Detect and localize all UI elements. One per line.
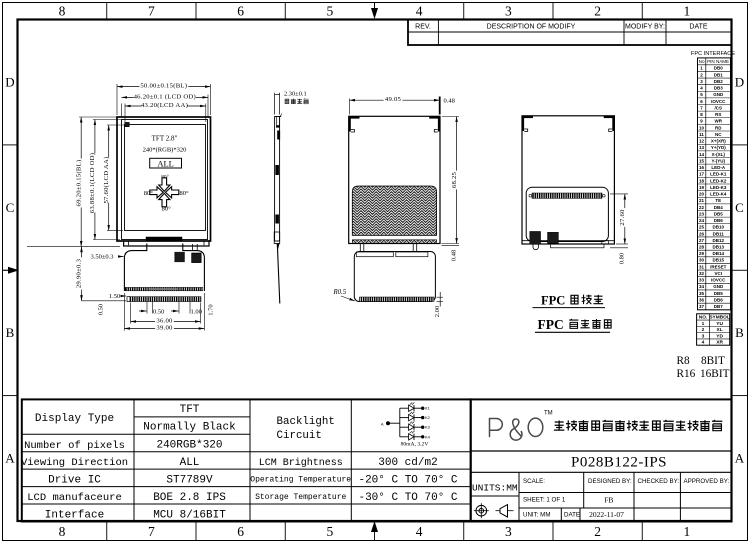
svg-text:22: 22 — [699, 205, 705, 210]
svg-text:16: 16 — [699, 165, 705, 170]
svg-text:LED-K4: LED-K4 — [710, 192, 727, 197]
svg-text:C: C — [6, 200, 15, 215]
svg-text:Number of pixels: Number of pixels — [24, 440, 125, 452]
svg-text:MCU 8/16BIT: MCU 8/16BIT — [153, 509, 226, 521]
svg-text:1: 1 — [684, 524, 691, 539]
svg-text:36.00: 36.00 — [156, 318, 173, 325]
svg-text:31: 31 — [699, 264, 705, 269]
svg-text:FPC INTERFACE: FPC INTERFACE — [691, 51, 735, 57]
svg-text:8BIT: 8BIT — [701, 355, 725, 367]
svg-text:No: No — [699, 59, 705, 64]
svg-text:33: 33 — [699, 278, 705, 283]
svg-text:B: B — [6, 325, 15, 340]
svg-text:10: 10 — [699, 125, 705, 130]
svg-text:P028B122-IPS: P028B122-IPS — [571, 455, 667, 471]
svg-text:A: A — [5, 451, 15, 466]
svg-text:WR: WR — [715, 119, 723, 124]
svg-text:PIN NAME: PIN NAME — [707, 59, 729, 64]
svg-text:X-(XL): X-(XL) — [712, 152, 726, 157]
svg-text:6: 6 — [237, 4, 244, 19]
svg-text:DB7: DB7 — [714, 304, 723, 309]
svg-text:8: 8 — [59, 4, 66, 19]
svg-text:6: 6 — [237, 524, 244, 539]
svg-text:K4: K4 — [425, 434, 431, 439]
svg-text:5: 5 — [327, 4, 334, 19]
svg-text:12: 12 — [699, 139, 705, 144]
svg-text:26: 26 — [699, 231, 705, 236]
svg-text:Viewing Direction: Viewing Direction — [21, 457, 128, 469]
svg-text:0.48: 0.48 — [450, 250, 457, 261]
svg-text:80°: 80° — [180, 190, 190, 197]
svg-text:TE: TE — [715, 198, 721, 203]
svg-text:X+(XR): X+(XR) — [711, 139, 726, 144]
svg-text:25: 25 — [699, 225, 705, 230]
svg-text:MODIFY BY:: MODIFY BY: — [625, 23, 665, 30]
svg-text:XL: XL — [717, 327, 723, 333]
svg-text:27.60: 27.60 — [619, 209, 626, 226]
svg-text:20: 20 — [699, 192, 705, 197]
svg-text:REV.: REV. — [415, 23, 431, 30]
svg-text:APPROVED BY:: APPROVED BY: — [684, 478, 730, 485]
svg-text:K3: K3 — [425, 425, 431, 430]
svg-text:VCI: VCI — [715, 271, 723, 276]
svg-text:2: 2 — [594, 4, 601, 19]
svg-text:Display Type: Display Type — [35, 413, 114, 425]
svg-text:21: 21 — [699, 198, 705, 203]
svg-text:D: D — [735, 75, 744, 90]
svg-text:XR: XR — [716, 340, 723, 346]
svg-text:1.00: 1.00 — [191, 309, 202, 316]
svg-text:1: 1 — [684, 4, 691, 19]
svg-text:0.48: 0.48 — [444, 98, 455, 105]
svg-text:Interface: Interface — [45, 509, 104, 521]
svg-text:LCD manufaceure: LCD manufaceure — [27, 492, 122, 504]
svg-text:63.88±0.1(LCD OD): 63.88±0.1(LCD OD) — [89, 153, 96, 214]
svg-text:IOVCC: IOVCC — [711, 99, 726, 104]
svg-text:UNITS:MM: UNITS:MM — [472, 483, 518, 494]
svg-text:SYMBOL: SYMBOL — [709, 315, 730, 321]
svg-text:DESCRIPTION OF MODIFY: DESCRIPTION OF MODIFY — [487, 23, 576, 30]
svg-text:DB4: DB4 — [714, 205, 723, 210]
svg-text:1.50: 1.50 — [109, 293, 120, 300]
svg-text:DB12: DB12 — [713, 238, 725, 243]
svg-text:1: 1 — [702, 321, 705, 327]
svg-text:1.70: 1.70 — [208, 304, 215, 315]
svg-text:300 cd/m2: 300 cd/m2 — [378, 457, 437, 469]
svg-text:Y-(YU): Y-(YU) — [712, 158, 726, 163]
svg-text:FB: FB — [604, 496, 613, 505]
svg-text:DB6: DB6 — [714, 218, 723, 223]
svg-text:SCALE:: SCALE: — [523, 478, 545, 485]
svg-text:80°: 80° — [162, 206, 172, 213]
svg-text:2.30±0.1: 2.30±0.1 — [284, 91, 307, 98]
svg-text:LED-K2: LED-K2 — [710, 178, 727, 183]
svg-text:2.00: 2.00 — [434, 306, 441, 317]
svg-text:3: 3 — [505, 4, 512, 19]
svg-text:5: 5 — [327, 524, 334, 539]
svg-text:FPC: FPC — [541, 294, 565, 308]
svg-text:GND: GND — [713, 284, 724, 289]
svg-text:23: 23 — [699, 211, 705, 216]
svg-text:DATE: DATE — [564, 512, 580, 519]
svg-text:43.20(LCD AA): 43.20(LCD AA) — [141, 102, 188, 109]
svg-text:240*(RGB)*320: 240*(RGB)*320 — [143, 147, 187, 154]
svg-text:3: 3 — [505, 524, 512, 539]
svg-text:C: C — [735, 200, 744, 215]
svg-text:4: 4 — [416, 4, 423, 19]
svg-text:YD: YD — [716, 333, 723, 339]
svg-text:B: B — [735, 325, 744, 340]
svg-text:27: 27 — [699, 238, 705, 243]
svg-text:19: 19 — [699, 185, 705, 190]
svg-text:Y+(YD): Y+(YD) — [711, 145, 726, 150]
svg-text:80mA, 3.2V: 80mA, 3.2V — [401, 441, 429, 447]
svg-text:-20° C TO 70° C: -20° C TO 70° C — [358, 474, 457, 486]
svg-text:34: 34 — [699, 284, 705, 289]
svg-text:37: 37 — [699, 304, 705, 309]
svg-text:35: 35 — [699, 291, 705, 296]
svg-text:240RGB*320: 240RGB*320 — [156, 439, 222, 451]
svg-text:Storage Temperature: Storage Temperature — [255, 493, 346, 502]
svg-text:Circuit: Circuit — [277, 430, 322, 442]
svg-text:IOVCC: IOVCC — [711, 278, 726, 283]
svg-text:7: 7 — [148, 4, 155, 19]
svg-text:50.00±0.15(BL): 50.00±0.15(BL) — [140, 83, 187, 90]
svg-text:3.50±0.3: 3.50±0.3 — [90, 254, 113, 261]
svg-text:DB5: DB5 — [714, 291, 723, 296]
svg-text:YU: YU — [716, 321, 723, 327]
svg-text:Operating Temperature: Operating Temperature — [250, 475, 351, 484]
svg-text:8: 8 — [59, 524, 66, 539]
svg-text:28: 28 — [699, 245, 705, 250]
svg-text:DB6: DB6 — [714, 297, 723, 302]
svg-text:K1: K1 — [425, 406, 431, 411]
svg-text:0.80: 0.80 — [619, 253, 626, 264]
svg-text:17: 17 — [699, 172, 705, 177]
svg-text:3: 3 — [702, 333, 705, 339]
svg-text:CHECKED BY:: CHECKED BY: — [638, 478, 680, 485]
svg-text:DB10: DB10 — [713, 225, 725, 230]
svg-text:DB5: DB5 — [714, 211, 723, 216]
svg-text:R0.5: R0.5 — [333, 289, 347, 296]
svg-text:DB13: DB13 — [713, 245, 725, 250]
svg-text:57.60(LCD AA): 57.60(LCD AA) — [103, 156, 110, 203]
svg-text:24: 24 — [699, 218, 705, 223]
svg-text:15: 15 — [699, 158, 705, 163]
svg-text:-30° C TO 70° C: -30° C TO 70° C — [358, 492, 457, 504]
svg-text:ST7789V: ST7789V — [166, 474, 213, 486]
svg-text:D: D — [5, 75, 14, 90]
svg-text:TFT 2.8": TFT 2.8" — [152, 135, 178, 143]
svg-text:LED-A: LED-A — [711, 165, 725, 170]
svg-text:ALL: ALL — [180, 457, 200, 469]
svg-text:DB14: DB14 — [713, 251, 725, 256]
svg-text:13: 13 — [699, 145, 705, 150]
svg-text:39.00: 39.00 — [156, 325, 173, 332]
svg-text:DB2: DB2 — [714, 79, 723, 84]
svg-text:30: 30 — [699, 258, 705, 263]
svg-text:RD: RD — [715, 125, 722, 130]
svg-text:SHEET: 1 OF 1: SHEET: 1 OF 1 — [523, 497, 566, 504]
svg-text:68.25: 68.25 — [451, 171, 458, 188]
svg-text:K2: K2 — [425, 415, 431, 420]
svg-text:ALL: ALL — [157, 158, 174, 168]
svg-text:/RESET: /RESET — [710, 264, 727, 269]
svg-text:NO.: NO. — [699, 315, 708, 321]
svg-text:49.05: 49.05 — [385, 96, 402, 103]
svg-text:2022-11-07: 2022-11-07 — [589, 510, 624, 519]
svg-text:16BIT: 16BIT — [700, 368, 730, 380]
svg-text:DB11: DB11 — [713, 231, 725, 236]
svg-text:UNIT: MM: UNIT: MM — [523, 512, 551, 519]
svg-text:LED-K1: LED-K1 — [710, 172, 727, 177]
svg-text:DB15: DB15 — [713, 258, 725, 263]
svg-text:69.20±0.15(BL): 69.20±0.15(BL) — [75, 160, 82, 207]
svg-text:R8: R8 — [677, 355, 691, 367]
svg-text:2: 2 — [702, 327, 705, 333]
svg-text:DESIGNED BY:: DESIGNED BY: — [588, 478, 632, 485]
svg-text:29.90±0.3: 29.90±0.3 — [76, 258, 83, 288]
svg-text:46.20±0.1 (LCD OD): 46.20±0.1 (LCD OD) — [134, 93, 196, 100]
svg-text:2: 2 — [594, 524, 601, 539]
svg-text:DATE: DATE — [689, 23, 707, 30]
svg-text:A: A — [735, 451, 745, 466]
svg-text:29: 29 — [699, 251, 705, 256]
svg-text:18: 18 — [699, 178, 705, 183]
svg-text:80°: 80° — [144, 190, 154, 197]
svg-text:36: 36 — [699, 297, 705, 302]
svg-text:GND: GND — [713, 92, 724, 97]
svg-text:0.50: 0.50 — [98, 304, 105, 315]
svg-text:BOE 2.8 IPS: BOE 2.8 IPS — [153, 492, 226, 504]
svg-text:Normally Black: Normally Black — [143, 422, 236, 434]
svg-text:80°: 80° — [161, 174, 169, 181]
svg-text:TM: TM — [544, 411, 553, 417]
svg-text:LED-K3: LED-K3 — [710, 185, 727, 190]
svg-text:TFT: TFT — [180, 404, 200, 416]
svg-text:7: 7 — [148, 524, 155, 539]
svg-text:NC: NC — [715, 132, 722, 137]
svg-text:14: 14 — [699, 152, 705, 157]
svg-text:R16: R16 — [677, 368, 696, 380]
svg-text:LCM Brightness: LCM Brightness — [259, 457, 343, 469]
svg-text:Backlight: Backlight — [277, 416, 335, 428]
svg-text:A: A — [381, 422, 384, 427]
svg-text:Drive IC: Drive IC — [48, 474, 101, 486]
svg-text:DB1: DB1 — [714, 72, 723, 77]
svg-text:/CS: /CS — [715, 105, 723, 110]
svg-text:DB0: DB0 — [714, 66, 723, 71]
svg-text:RS: RS — [715, 112, 721, 117]
svg-text:0.50: 0.50 — [153, 309, 164, 316]
svg-text:4: 4 — [416, 524, 423, 539]
svg-text:11: 11 — [699, 132, 704, 137]
svg-text:FPC: FPC — [538, 317, 564, 332]
svg-text:32: 32 — [699, 271, 705, 276]
svg-text:DB3: DB3 — [714, 86, 723, 91]
svg-text:4: 4 — [702, 340, 705, 346]
